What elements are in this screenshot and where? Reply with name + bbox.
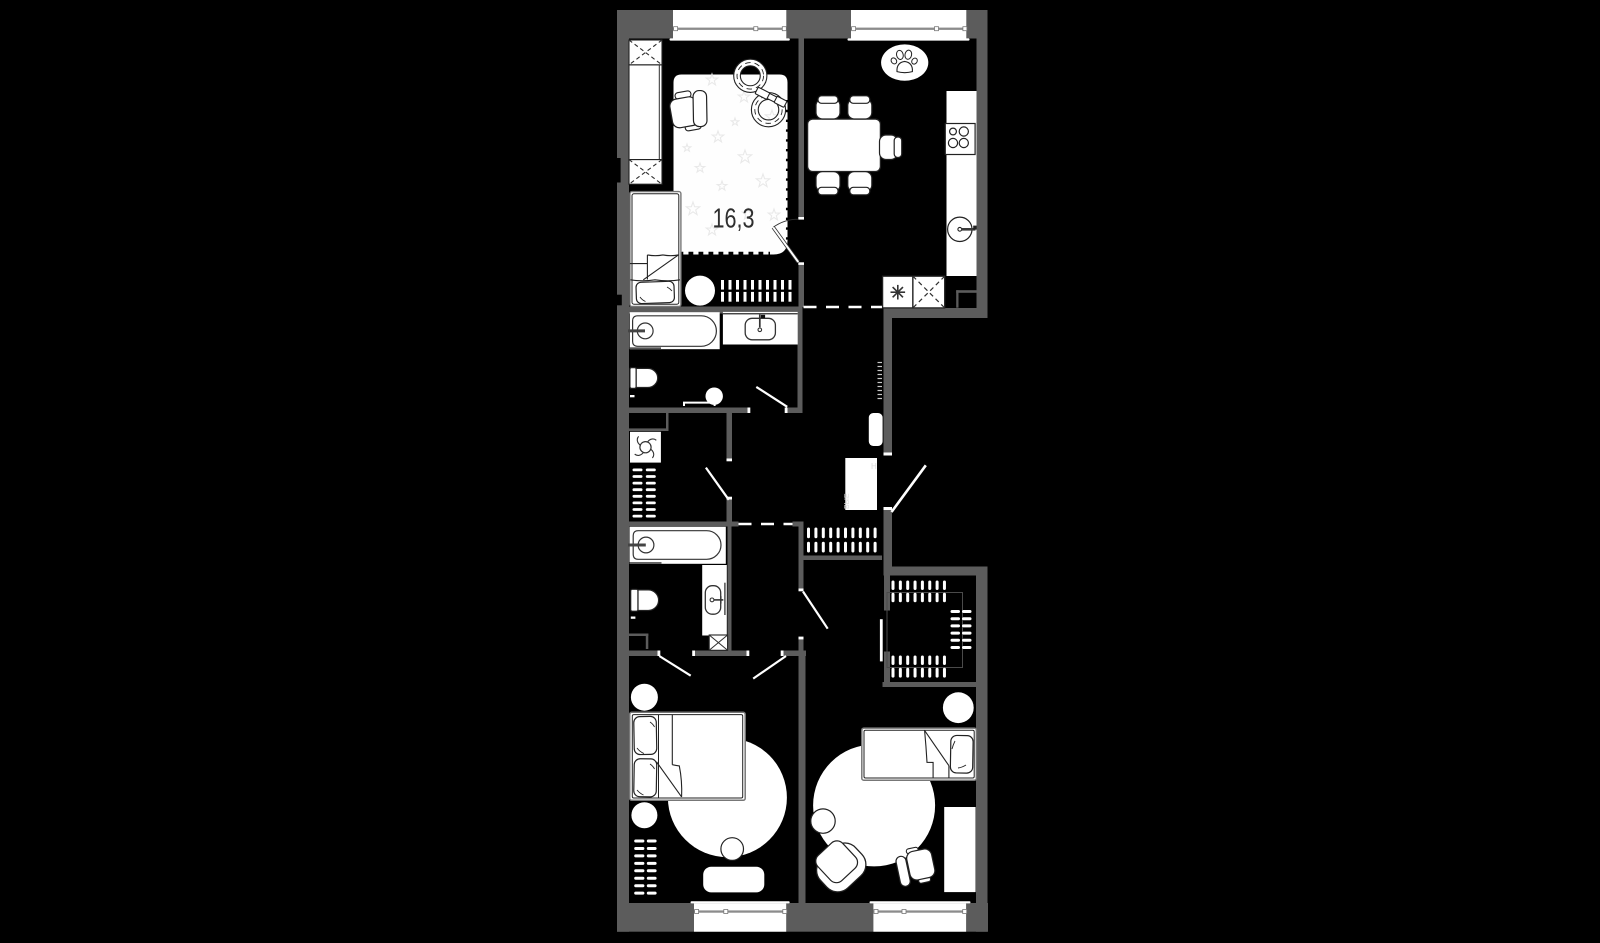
svg-text:ВЫЕ: ВЫЕ (844, 493, 851, 509)
svg-text:H: H (871, 462, 877, 471)
svg-text:16,3: 16,3 (713, 203, 755, 234)
